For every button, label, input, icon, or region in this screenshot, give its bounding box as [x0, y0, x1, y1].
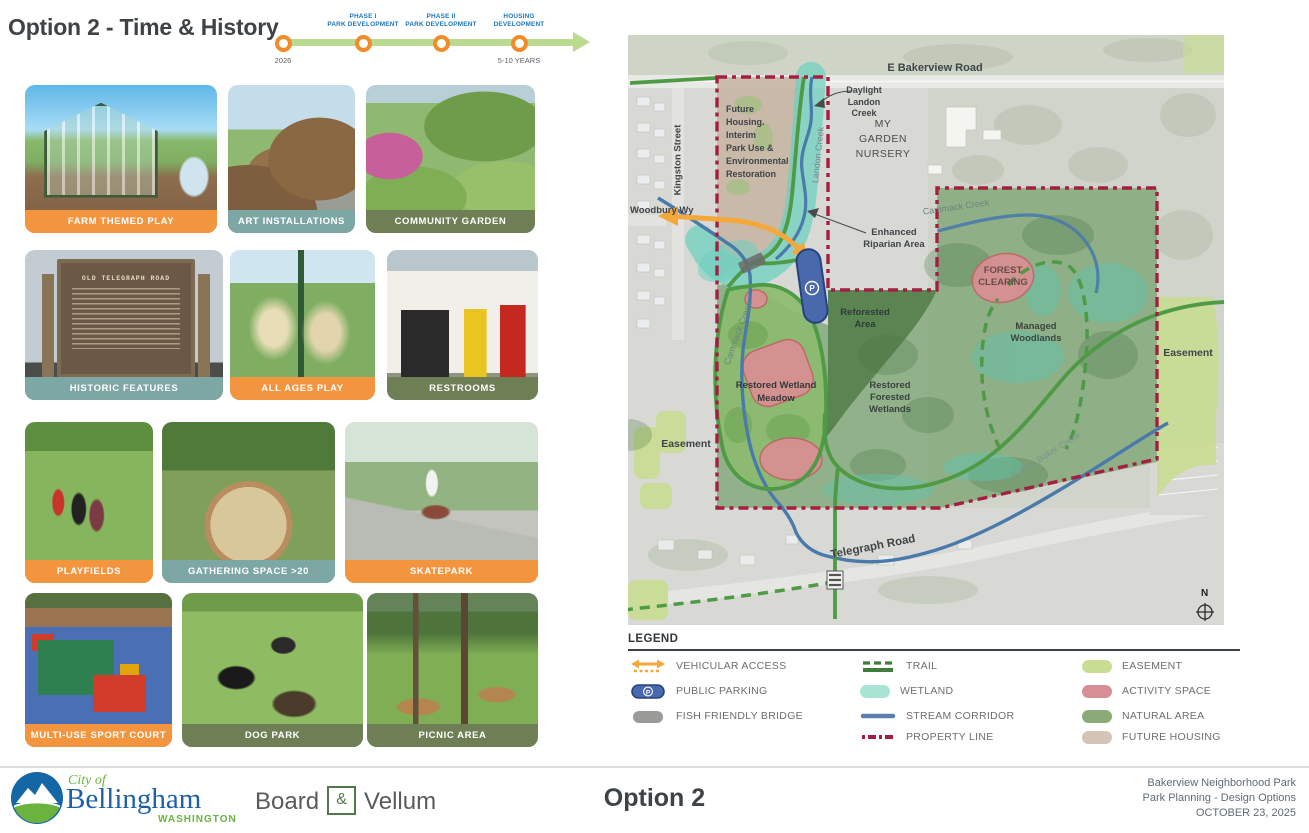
legend-title: LEGEND — [628, 633, 678, 645]
timeline-node-phase2 — [433, 35, 450, 52]
road-label-kingston: Kingston Street — [673, 125, 684, 196]
legend-label: FISH FRIENDLY BRIDGE — [676, 710, 803, 722]
phasing-timeline: PHASE I PARK DEVELOPMENT PHASE II PARK D… — [270, 6, 605, 64]
photo-card-label: SKATEPARK — [345, 560, 538, 583]
photo-card-dog-park: DOG PARK — [182, 593, 363, 747]
label-reforested-area: Reforested Area — [840, 307, 890, 331]
legend-item-fish-friendly-bridge: FISH FRIENDLY BRIDGE — [630, 707, 803, 725]
photo-card-multi-use-sport-court: MULTI-USE SPORT COURT — [25, 593, 172, 747]
timeline-start-year: 2026 — [275, 56, 292, 65]
timeline-arrowhead-icon — [573, 32, 590, 52]
timeline-milestone-label: HOUSING DEVELOPMENT — [494, 13, 545, 29]
photo-card-picnic-area: PICNIC AREA — [367, 593, 538, 747]
timeline-line — [280, 39, 575, 46]
page-title: Option 2 - Time & History — [8, 14, 279, 41]
future-housing-swatch — [1082, 731, 1112, 744]
site-plan-map: P E Bakerview Road Kingston Street Woodb… — [628, 35, 1224, 625]
old-telegraph-road-sign: OLD TELEGRAPH ROAD — [57, 259, 196, 378]
skatepark-photo — [345, 422, 538, 583]
parking-glyph: P — [646, 689, 651, 696]
north-arrow-label: N — [1201, 588, 1208, 599]
footer-divider — [0, 766, 1309, 768]
site-plan-drawing: P — [628, 35, 1224, 625]
legend-label: TRAIL — [906, 660, 937, 672]
sign-title: OLD TELEGRAPH ROAD — [61, 275, 192, 282]
legend-label: PROPERTY LINE — [906, 731, 994, 743]
legend-label: PUBLIC PARKING — [676, 685, 768, 697]
annotation-future-housing: Future Housing. Interim Park Use & Envir… — [726, 103, 789, 181]
project-name: Bakerview Neighborhood Park — [1143, 776, 1296, 791]
label-restored-forested-wetlands: Restored Forested Wetlands — [869, 380, 911, 416]
legend-label: VEHICULAR ACCESS — [676, 660, 786, 672]
photo-card-community-garden: COMMUNITY GARDEN — [366, 85, 535, 233]
photo-card-label: RESTROOMS — [387, 377, 538, 400]
timeline-milestone-label: PHASE I PARK DEVELOPMENT — [327, 13, 398, 29]
photo-card-playfields: PLAYFIELDS — [25, 422, 153, 583]
road-label-bakerview: E Bakerview Road — [887, 62, 982, 74]
legend-label: FUTURE HOUSING — [1122, 731, 1221, 743]
legend-label: WETLAND — [900, 685, 953, 697]
timeline-milestone-label: PHASE II PARK DEVELOPMENT — [405, 13, 476, 29]
timeline-node-housing — [511, 35, 528, 52]
photo-card-historic-features: OLD TELEGRAPH ROAD HISTORIC FEATURES — [25, 250, 223, 400]
photo-card-label: DOG PARK — [182, 724, 363, 747]
project-info-block: Bakerview Neighborhood Park Park Plannin… — [1143, 776, 1296, 821]
label-restored-wetland-meadow: Restored Wetland Meadow — [736, 380, 817, 405]
vehicular-access-icon — [630, 657, 666, 675]
label-managed-woodlands: Managed Woodlands — [1010, 321, 1061, 345]
wetland-swatch — [860, 685, 890, 698]
project-subtitle: Park Planning - Design Options — [1143, 791, 1296, 806]
photo-card-label: ALL AGES PLAY — [230, 377, 375, 400]
activity-space-swatch — [1082, 685, 1112, 698]
road-label-woodbury: Woodbury Wy — [630, 205, 694, 216]
timeline-node-start — [275, 35, 292, 52]
photo-card-skatepark: SKATEPARK — [345, 422, 538, 583]
timeline-node-phase1 — [355, 35, 372, 52]
photo-card-restrooms: RESTROOMS — [387, 250, 538, 400]
program-photo-grid: FARM THEMED PLAY ART INSTALLATIONS COMMU… — [25, 85, 541, 763]
legend-item-natural-area: NATURAL AREA — [1082, 707, 1204, 725]
photo-card-label: PLAYFIELDS — [25, 560, 153, 583]
sign-text-lines — [72, 288, 179, 349]
photo-card-label: HISTORIC FEATURES — [25, 377, 223, 400]
trail-icon — [860, 657, 896, 675]
legend-item-future-housing: FUTURE HOUSING — [1082, 728, 1221, 746]
photo-card-label: COMMUNITY GARDEN — [366, 210, 535, 233]
photo-card-label: GATHERING SPACE >20 — [162, 560, 335, 583]
annotation-enhanced-riparian: Enhanced Riparian Area — [863, 227, 924, 251]
photo-card-all-ages-play: ALL AGES PLAY — [230, 250, 375, 400]
gathering-space-photo — [162, 422, 335, 583]
easement-swatch — [1082, 660, 1112, 673]
label-easement-west: Easement — [661, 438, 711, 450]
legend-item-property-line: PROPERTY LINE — [860, 728, 994, 746]
property-line-icon — [860, 728, 896, 746]
annotation-daylight-landon-creek: Daylight Landon Creek — [846, 85, 882, 120]
natural-area-swatch — [1082, 710, 1112, 723]
footer-option-title: Option 2 — [0, 784, 1309, 813]
legend-item-public-parking: P PUBLIC PARKING — [630, 682, 768, 700]
photo-card-label: PICNIC AREA — [367, 724, 538, 747]
legend-item-stream-corridor: STREAM CORRIDOR — [860, 707, 1014, 725]
legend-item-vehicular-access: VEHICULAR ACCESS — [630, 657, 786, 675]
timeline-end-duration: 5-10 YEARS — [498, 56, 540, 65]
photo-card-label: MULTI-USE SPORT COURT — [25, 724, 172, 747]
public-parking-icon: P — [630, 682, 666, 700]
legend-item-trail: TRAIL — [860, 657, 937, 675]
project-date: OCTOBER 23, 2025 — [1143, 806, 1296, 821]
legend-item-activity-space: ACTIVITY SPACE — [1082, 682, 1211, 700]
legend-label: ACTIVITY SPACE — [1122, 685, 1211, 697]
logo-state-text: WASHINGTON — [158, 814, 237, 825]
legend-label: STREAM CORRIDOR — [906, 710, 1014, 722]
photo-card-label: ART INSTALLATIONS — [228, 210, 355, 233]
photo-card-label: FARM THEMED PLAY — [25, 210, 217, 233]
label-my-garden-nursery: MY GARDEN NURSERY — [856, 117, 911, 162]
legend-label: NATURAL AREA — [1122, 710, 1204, 722]
fish-friendly-bridge-icon — [630, 707, 666, 725]
legend-item-wetland: WETLAND — [860, 682, 953, 700]
parking-icon-glyph: P — [809, 284, 815, 293]
label-easement-east: Easement — [1163, 347, 1213, 359]
legend-label: EASEMENT — [1122, 660, 1182, 672]
photo-card-farm-themed-play: FARM THEMED PLAY — [25, 85, 217, 233]
photo-card-art-installations: ART INSTALLATIONS — [228, 85, 355, 233]
legend-divider — [628, 649, 1240, 651]
label-forest-clearing: FOREST CLEARING — [978, 265, 1028, 289]
stream-corridor-icon — [860, 707, 896, 725]
legend-item-easement: EASEMENT — [1082, 657, 1182, 675]
photo-card-gathering-space: GATHERING SPACE >20 — [162, 422, 335, 583]
playfields-photo — [25, 422, 153, 583]
